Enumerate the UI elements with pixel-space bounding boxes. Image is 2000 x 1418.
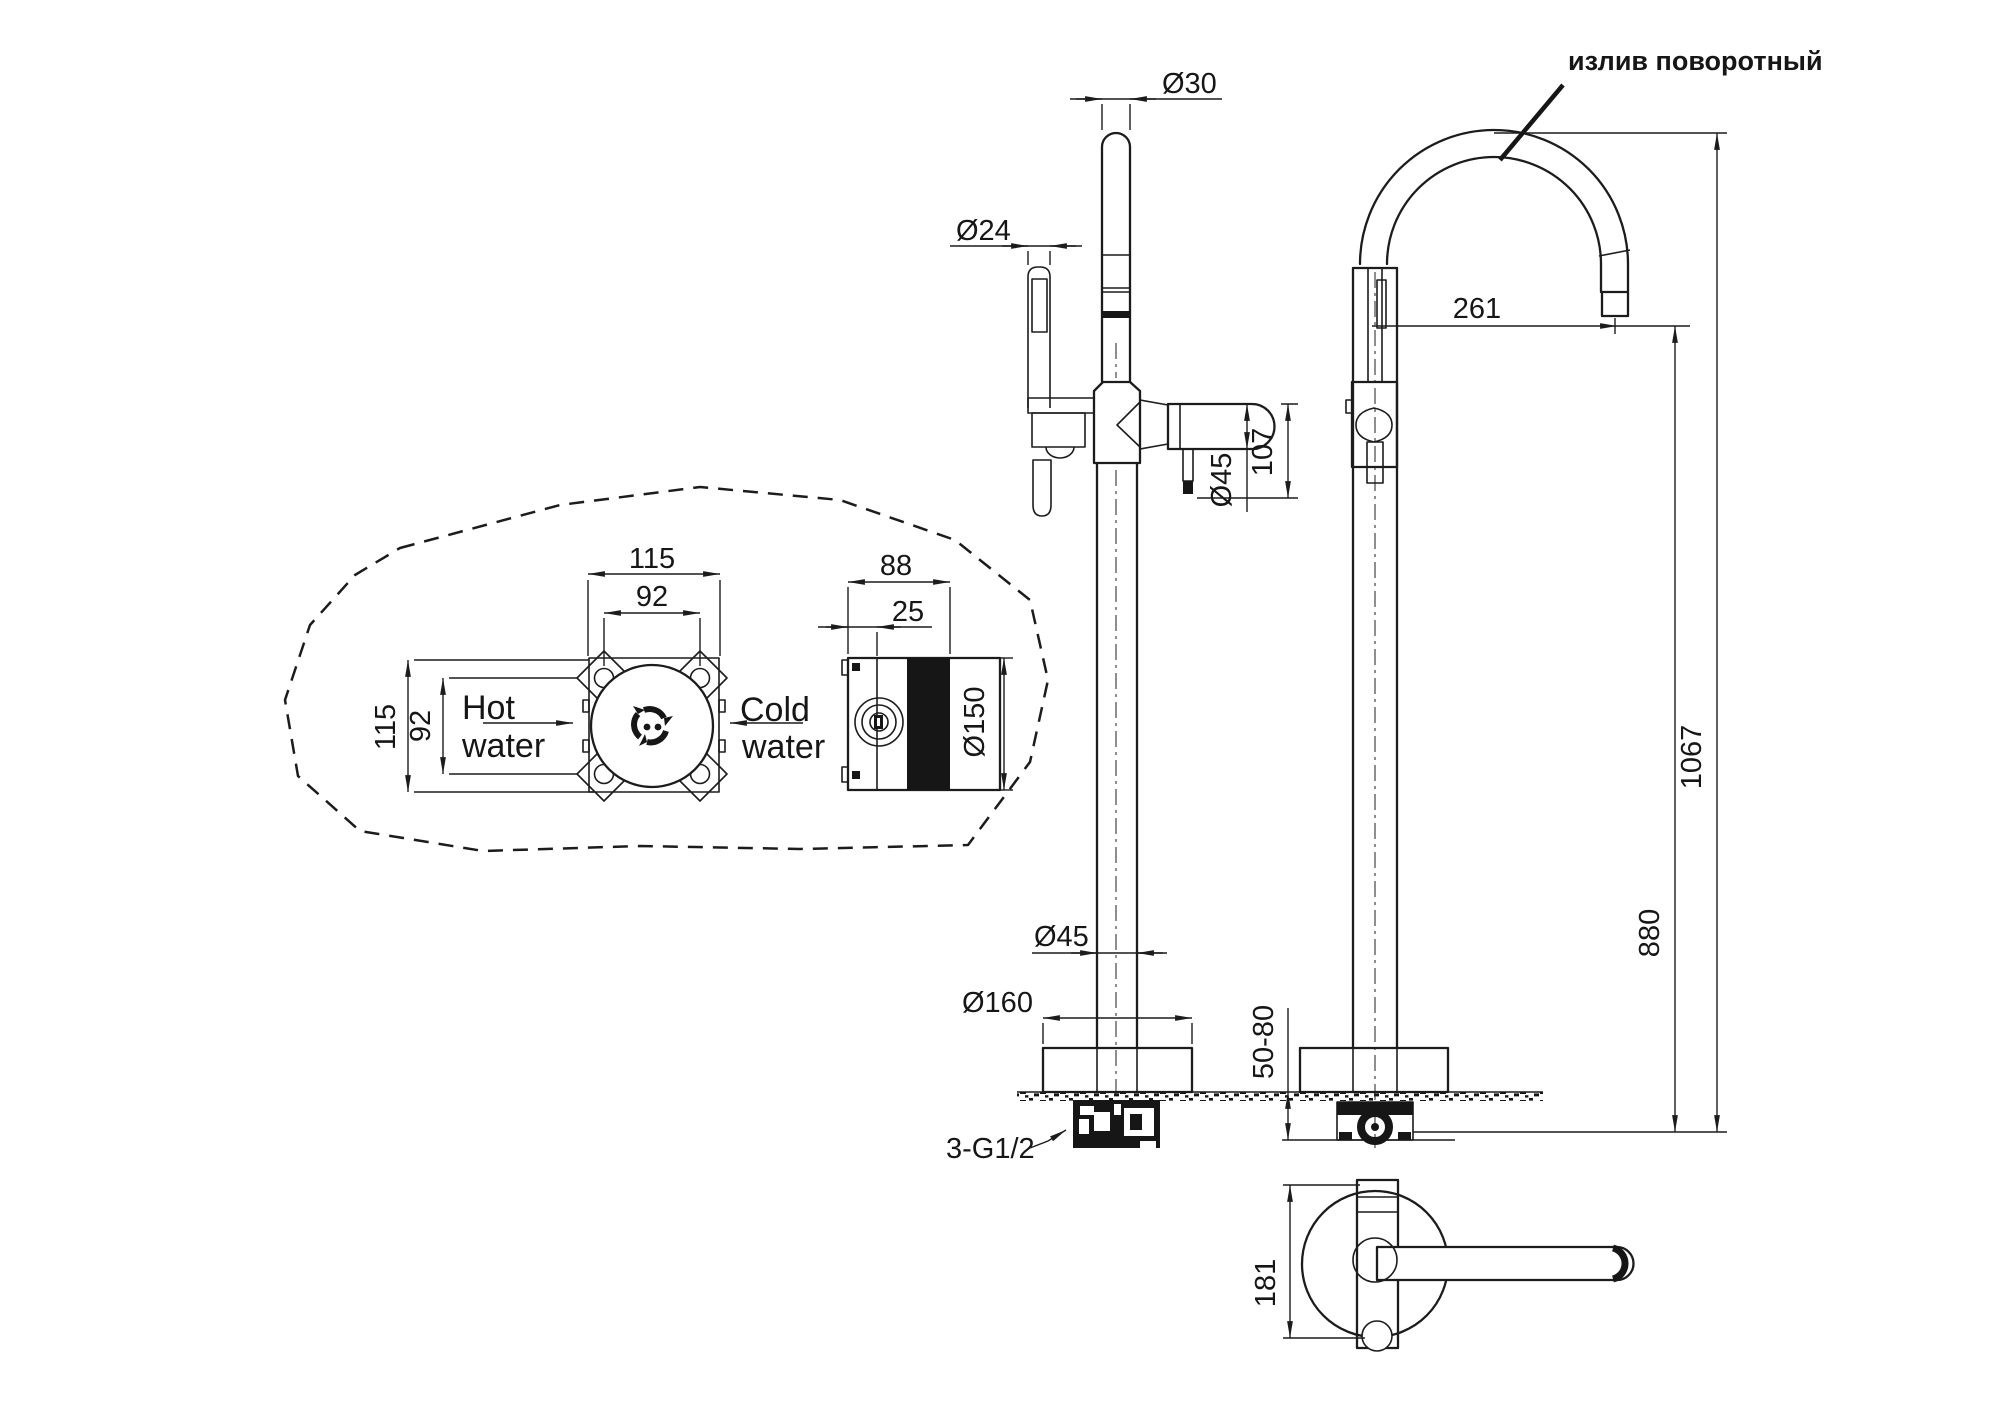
mounting-box-front-view (577, 651, 727, 801)
side-port-key-slot (877, 718, 880, 726)
dim-handshower-diameter-24: Ø24 (950, 215, 1082, 265)
faucet-plan-view: 181 (1250, 1180, 1634, 1351)
under-floor-bracket-left (1073, 1100, 1160, 1148)
spout-plan (1377, 1247, 1634, 1280)
faucet-front-view: Ø30 Ø24 Ø45 107 Ø45 (946, 68, 1455, 1165)
faucet-installation-drawing: Hot water Cold water 115 92 115 (0, 0, 2000, 1413)
limiter-pin-tip (1183, 481, 1193, 494)
dim-box-flange-offset-25: 25 (818, 596, 932, 656)
hand-shower-grip (1032, 279, 1047, 332)
lever-end-view (1356, 408, 1392, 442)
box-body-circle (591, 665, 713, 787)
dim-text: Ø150 (959, 687, 991, 758)
valve-tee-body (1094, 382, 1140, 463)
dim-riser-diameter-30: Ø30 (1070, 68, 1222, 130)
shower-holder-body (1032, 413, 1085, 447)
dim-text: 880 (1634, 909, 1666, 957)
box-side-screw (852, 771, 860, 779)
box-side-screw (852, 663, 860, 671)
handle-knob-plan (1362, 1321, 1392, 1351)
dim-text: 92 (405, 710, 437, 742)
dim-spout-height-880: 880 (1634, 326, 1675, 1132)
dim-base-diameter-160: Ø160 (962, 987, 1192, 1044)
riser-ring (1102, 311, 1130, 318)
faucet-side-view: 261 880 1067 излив поворотный (1300, 46, 1823, 1148)
dim-overall-height-1067: 1067 (1413, 133, 1727, 1132)
dim-pipe-diameter-45: Ø45 (1032, 921, 1167, 953)
base-flange (1043, 1048, 1192, 1092)
spout-arc-outer (1360, 130, 1628, 264)
box-notch (583, 700, 589, 712)
dim-text: 88 (880, 550, 912, 582)
handle-neck (1140, 400, 1168, 449)
swivel-spout-callout: излив поворотный (1500, 46, 1823, 160)
dim-floor-thickness-50-80: 50-80 (1248, 1005, 1455, 1140)
dim-box-diameter-150: Ø150 (959, 658, 1013, 790)
detail-inset-view: Hot water Cold water 115 92 115 (285, 487, 1048, 851)
floor-section (1017, 1092, 1543, 1101)
technical-drawing-page: Hot water Cold water 115 92 115 (0, 0, 2000, 1413)
box-notch (719, 740, 725, 752)
cold-text-line2: water (741, 728, 825, 766)
dim-text: 115 (370, 704, 402, 750)
hot-water-label: Hot water (461, 689, 573, 765)
spout-outlet-tip (1602, 292, 1628, 316)
dim-text: 261 (1453, 293, 1501, 325)
cold-water-label: Cold water (730, 691, 825, 766)
dim-text: Ø160 (962, 987, 1033, 1019)
shower-holder-top (1028, 398, 1094, 413)
thread-callout: 3-G1/2 (946, 1130, 1066, 1165)
limiter-pin (1183, 449, 1193, 481)
hot-text-line1: Hot (462, 689, 515, 727)
dim-text: 50-80 (1248, 1005, 1280, 1079)
thread-leader-arrow (1030, 1130, 1066, 1148)
dim-text: Ø24 (956, 215, 1011, 247)
dim-text: 92 (636, 581, 668, 613)
spout-arc-inner (1387, 157, 1601, 264)
dim-box-hole-spacing-w-92: 92 (604, 581, 700, 666)
shower-holder-hook (1046, 447, 1074, 458)
box-black-band (907, 658, 950, 790)
dim-text: 1067 (1676, 725, 1708, 790)
box-notch (583, 740, 589, 752)
hot-text-line2: water (461, 727, 545, 765)
thread-note-text: 3-G1/2 (946, 1133, 1035, 1165)
hand-shower (1028, 267, 1094, 516)
tee-cone-lines (1117, 402, 1140, 447)
shower-hose-end (1033, 460, 1051, 516)
dim-plan-width-181: 181 (1250, 1185, 1365, 1338)
dim-text: Ø30 (1162, 68, 1217, 100)
dim-text: Ø45 (1206, 453, 1238, 508)
box-notch (719, 700, 725, 712)
swivel-spout-text: излив поворотный (1568, 46, 1823, 76)
dim-text: 107 (1247, 428, 1279, 476)
callout-leader (1500, 85, 1563, 160)
spout-joint (1599, 250, 1630, 256)
dim-text: 25 (892, 596, 924, 628)
floor-hatch (1017, 1092, 1543, 1101)
dim-text: 115 (629, 543, 675, 575)
dim-text: 181 (1250, 1259, 1282, 1307)
base-flange (1300, 1048, 1448, 1092)
dim-spout-reach-261: 261 (1372, 293, 1690, 334)
dim-text: Ø45 (1034, 921, 1089, 953)
